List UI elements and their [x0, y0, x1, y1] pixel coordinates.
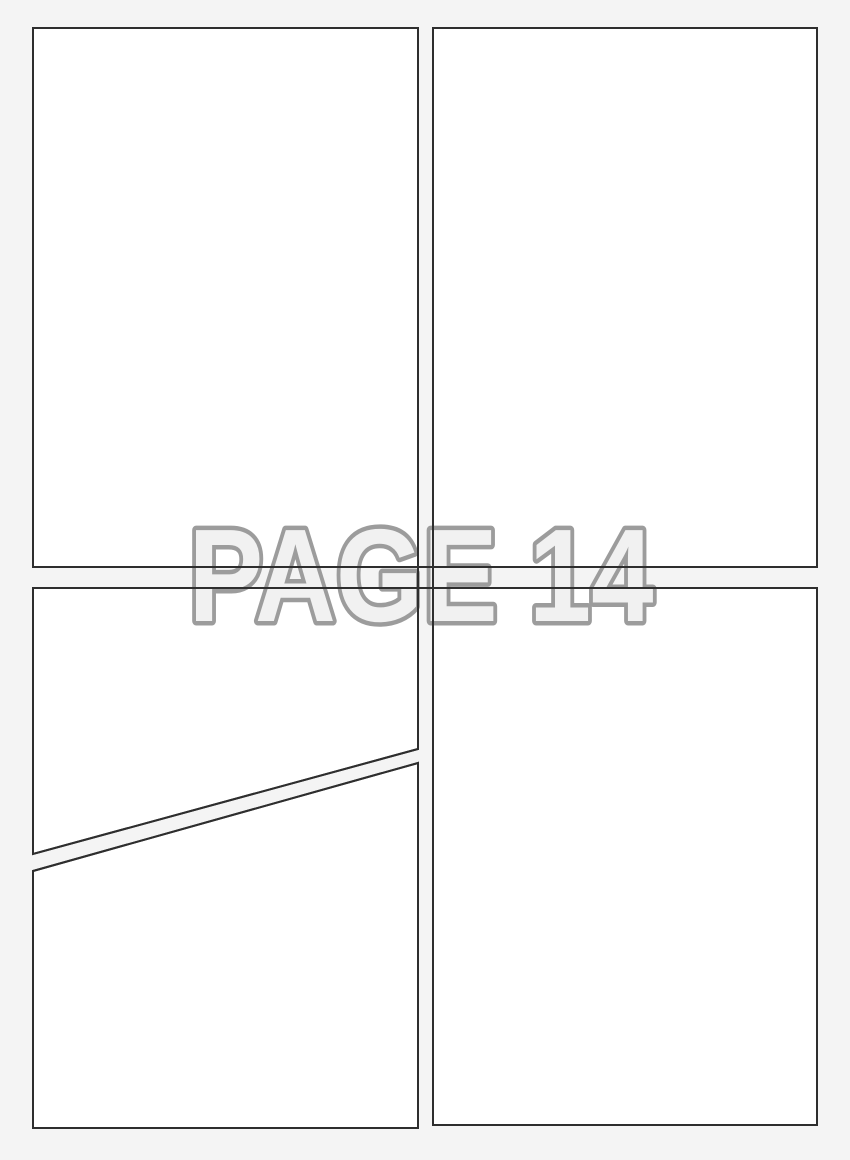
comic-page-template: PAGE 14 — [0, 0, 850, 1160]
panel-top-right — [433, 28, 817, 567]
page-label: PAGE 14 — [189, 502, 654, 649]
panel-top-left — [33, 28, 418, 567]
page-canvas: PAGE 14 — [0, 0, 850, 1160]
panel-bottom-right — [433, 588, 817, 1125]
